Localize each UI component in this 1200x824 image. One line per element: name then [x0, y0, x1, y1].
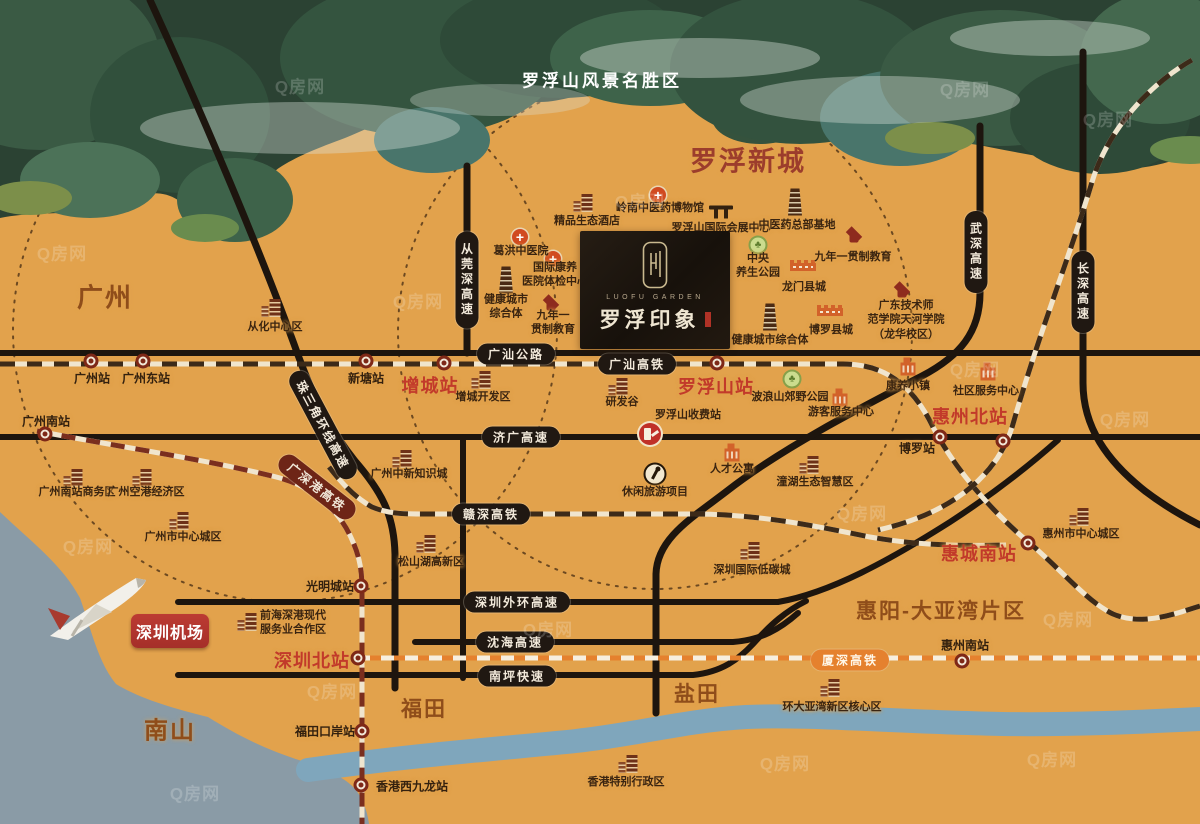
watermark: Q房网 — [940, 76, 990, 101]
watermark: Q房网 — [275, 73, 325, 98]
poi-label: 龙门县城 — [782, 280, 826, 294]
poi-label: 环大亚湾新区核心区 — [783, 700, 882, 714]
area-label: 广州 — [77, 278, 133, 315]
project-logo-cn: 罗浮印象 — [600, 304, 711, 334]
scenic-area-title: 罗浮山风景名胜区 — [522, 67, 682, 92]
station-icon — [355, 724, 370, 739]
station-label: 惠州南站 — [941, 637, 989, 654]
station-icon — [996, 434, 1011, 449]
poi-label: 松山湖高新区 — [398, 555, 464, 569]
station-icon — [351, 651, 366, 666]
park-icon — [783, 370, 802, 389]
building-icon — [582, 194, 593, 212]
station-icon — [354, 579, 369, 594]
poi-label: 九年一 贯制教育 — [531, 309, 575, 338]
luofu-seal-icon — [642, 241, 668, 289]
road-name-pill: 南坪快速 — [478, 666, 556, 687]
building-icon — [808, 456, 819, 474]
station-label: 增城站 — [402, 372, 459, 398]
station-icon — [1021, 536, 1036, 551]
location-map: 罗浮山风景名胜区 LUOFU GARDEN 罗浮印象 深圳机场 广州罗浮新城南山… — [0, 0, 1200, 824]
road-name-pill: 武深高速 — [965, 211, 988, 293]
poi-label: 广州南站商务区 — [39, 485, 116, 499]
watermark: Q房网 — [523, 616, 573, 641]
poi-label: 增城开发区 — [456, 390, 511, 404]
poi-label: 广州市中心城区 — [145, 530, 222, 544]
building-icon — [246, 613, 257, 631]
area-label: 福田 — [401, 693, 447, 723]
poi-label: 休闲旅游项目 — [622, 485, 688, 499]
poi-label: 波浪山郊野公园 — [752, 390, 829, 404]
building-icon — [401, 450, 412, 468]
area-label: 盐田 — [674, 678, 720, 708]
watermark: Q房网 — [1083, 106, 1133, 131]
station-icon — [437, 356, 452, 371]
blocks-icon — [725, 449, 740, 462]
road-name-pill: 济广高速 — [482, 427, 560, 448]
station-icon — [136, 354, 151, 369]
road-name-pill: 广汕高铁 — [598, 354, 676, 375]
poi-label: 广州空港经济区 — [108, 485, 185, 499]
building-icon — [627, 755, 638, 773]
watermark: Q房网 — [950, 356, 1000, 381]
map-base-graphic — [0, 0, 1200, 824]
station-label: 博罗站 — [899, 440, 935, 457]
poi-label: 从化中心区 — [248, 320, 303, 334]
watermark: Q房网 — [393, 288, 443, 313]
watermark: Q房网 — [615, 188, 665, 213]
poi-label: 香港特别行政区 — [588, 775, 665, 789]
poi-label: 广州中新知识城 — [371, 467, 448, 481]
area-label: 惠阳-大亚湾片区 — [856, 595, 1026, 625]
poi-label: 精品生态酒店 — [554, 214, 620, 228]
poi-label: 潼湖生态智慧区 — [777, 475, 854, 489]
watermark: Q房网 — [37, 240, 87, 265]
building-icon — [425, 535, 436, 553]
station-label: 光明城站 — [306, 578, 354, 595]
cap-icon — [893, 282, 911, 299]
road-name-pill: 从莞深高速 — [456, 232, 479, 329]
building-icon — [178, 512, 189, 530]
station-icon — [84, 354, 99, 369]
station-label: 罗浮山站 — [678, 373, 754, 399]
poi-label: 罗浮山收费站 — [655, 408, 721, 422]
building-icon — [749, 542, 760, 560]
blocks-icon — [901, 363, 916, 376]
poi-label: 前海深港现代 服务业合作区 — [260, 609, 326, 638]
building-icon — [270, 299, 281, 317]
cross-icon — [512, 229, 528, 245]
poi-label: 葛洪中医院 — [494, 244, 549, 258]
toll-icon — [639, 423, 661, 445]
road-name-pill: 广汕公路 — [477, 344, 555, 365]
project-logo-card: LUOFU GARDEN 罗浮印象 — [580, 231, 730, 349]
station-label: 广州站 — [74, 370, 110, 387]
station-label: 深圳北站 — [274, 647, 350, 673]
poi-label: 康养小镇 — [886, 379, 930, 393]
project-logo-en: LUOFU GARDEN — [606, 294, 704, 301]
poi-label: 中医药总部基地 — [759, 218, 836, 232]
station-label: 惠城南站 — [941, 540, 1017, 566]
watermark: Q房网 — [63, 533, 113, 558]
station-label: 福田口岸站 — [295, 723, 355, 740]
poi-label: 国际康养 医院体检中心 — [522, 261, 588, 290]
poi-label: 博罗县城 — [809, 323, 853, 337]
watermark: Q房网 — [1100, 406, 1150, 431]
watermark: Q房网 — [170, 780, 220, 805]
leisure-icon — [644, 463, 667, 486]
area-label: 罗浮新城 — [690, 140, 806, 179]
watermark: Q房网 — [1043, 606, 1093, 631]
poi-label: 九年一贯制教育 — [815, 250, 892, 264]
area-label: 南山 — [144, 711, 196, 746]
station-icon — [933, 430, 948, 445]
station-icon — [354, 778, 369, 793]
poi-label: 惠州市中心城区 — [1043, 527, 1120, 541]
watermark: Q房网 — [837, 500, 887, 525]
building-icon — [829, 679, 840, 697]
cap-icon — [845, 227, 863, 244]
station-icon — [359, 354, 374, 369]
poi-label: 研发谷 — [606, 395, 639, 409]
station-icon — [955, 654, 970, 669]
road-name-pill: 长深高速 — [1072, 251, 1095, 333]
building-icon — [1078, 508, 1089, 526]
station-icon — [38, 427, 53, 442]
wall-icon — [817, 308, 843, 316]
poi-label: 深圳国际低碳城 — [714, 563, 791, 577]
poi-label: 人才公寓 — [710, 462, 754, 476]
poi-label: 健康城市综合体 — [732, 333, 809, 347]
road-name-pill: 深圳外环高速 — [464, 592, 570, 613]
building-icon — [617, 378, 628, 396]
shenzhen-airport-banner: 深圳机场 — [131, 614, 209, 648]
station-label: 香港西九龙站 — [376, 778, 448, 795]
station-label: 惠州北站 — [932, 403, 1008, 429]
gate-icon — [709, 206, 733, 219]
station-icon — [710, 356, 725, 371]
poi-label: 游客服务中心 — [808, 405, 874, 419]
poi-label: 中央 养生公园 — [736, 252, 780, 281]
station-label: 广州东站 — [122, 370, 170, 387]
building-icon — [480, 371, 491, 389]
road-name-pill: 厦深高铁 — [811, 650, 889, 671]
watermark: Q房网 — [307, 678, 357, 703]
watermark: Q房网 — [760, 750, 810, 775]
road-name-pill: 赣深高铁 — [452, 504, 530, 525]
watermark: Q房网 — [1027, 746, 1077, 771]
poi-label: 健康城市 综合体 — [484, 293, 528, 322]
poi-label: 社区服务中心 — [953, 384, 1019, 398]
station-label: 新塘站 — [348, 370, 384, 387]
wall-icon — [790, 263, 816, 271]
poi-label: 广东技术师 范学院天河学院 （龙华校区） — [868, 299, 945, 342]
